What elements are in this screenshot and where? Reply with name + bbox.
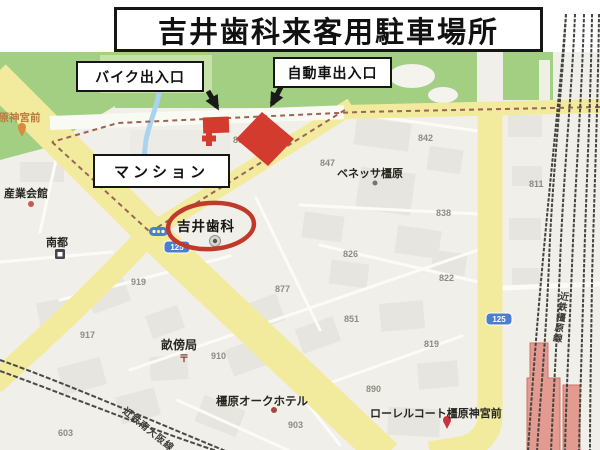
place-label: 産業会館 (4, 186, 48, 200)
station-name-label: 橿原神宮前 (0, 111, 41, 124)
dental-clinic-icon (210, 236, 221, 247)
route-shield-number: 125 (492, 315, 506, 324)
poi-dot-icon (373, 181, 378, 186)
place-label: ローレルコート橿原神宮前 (370, 406, 502, 420)
block-number: 851 (344, 314, 359, 324)
car-entrance-callout: 自動車出入口 (273, 57, 392, 88)
place-label: ベネッサ橿原 (337, 166, 403, 180)
place-label: 南都 (46, 235, 68, 249)
place-label: 畝傍局 (161, 337, 197, 352)
block-number: 822 (439, 273, 454, 283)
block-number: 838 (436, 208, 451, 218)
block-number: 603 (58, 428, 73, 438)
block-number: 903 (288, 420, 303, 430)
block-number: 917 (80, 330, 95, 340)
bike-entrance-callout: バイク出入口 (76, 61, 204, 92)
block-number: 919 (131, 277, 146, 287)
block-number: 842 (418, 133, 433, 143)
traffic-signal-icon (149, 227, 168, 236)
car-entrance-label: 自動車出入口 (288, 63, 378, 83)
bike-entrance-label: バイク出入口 (95, 67, 185, 87)
mansion-label: マンション (114, 161, 209, 182)
block-number: 819 (424, 339, 439, 349)
page-title-text: 吉井歯科来客用駐車場所 (158, 9, 499, 51)
block-number: 890 (366, 384, 381, 394)
mansion-callout: マンション (93, 154, 230, 188)
block-number: 877 (275, 284, 290, 294)
post-office-icon: 〒 (179, 353, 189, 365)
bank-icon (55, 249, 65, 259)
poi-dot-icon (28, 201, 34, 207)
page-title: 吉井歯科来客用駐車場所 (114, 7, 543, 52)
route-shield: 125 (486, 313, 512, 325)
block-number: 910 (211, 351, 226, 361)
parking-map-page: 125 125 〒 861847842811838826877822851819… (0, 0, 600, 450)
block-number: 826 (343, 249, 358, 259)
clinic-name-label: 吉井歯科 (177, 218, 235, 234)
block-number: 811 (529, 179, 544, 189)
bike-parking-marker (203, 117, 230, 134)
block-number: 847 (320, 158, 335, 168)
place-label: 橿原オークホテル (216, 394, 308, 408)
